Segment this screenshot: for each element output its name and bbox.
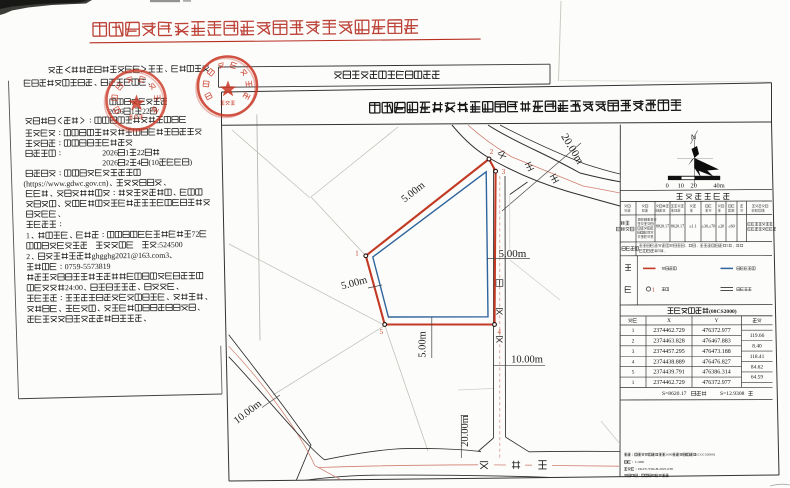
svg-text:3: 3	[632, 349, 635, 355]
svg-text:476372.977: 476372.977	[702, 380, 731, 386]
svg-text:5: 5	[726, 244, 728, 248]
svg-text:2374462.729: 2374462.729	[653, 380, 685, 386]
svg-text:≤60: ≤60	[728, 224, 734, 229]
svg-text:(CGCS2000): (CGCS2000)	[696, 453, 715, 457]
svg-text:1:1000: 1:1000	[634, 460, 644, 464]
svg-text:1: 1	[125, 148, 129, 157]
svg-text:(08CS2000): (08CS2000)	[709, 308, 737, 315]
svg-text:S=12.9308: S=12.9308	[720, 391, 745, 397]
svg-text:0759-5573819: 0759-5573819	[65, 262, 111, 271]
svg-text:X: X	[667, 318, 671, 324]
svg-text:≤20: ≤20	[718, 224, 724, 229]
svg-text:476476.827: 476476.827	[702, 359, 731, 365]
svg-text:2026: 2026	[102, 158, 118, 167]
svg-text:2: 2	[125, 158, 129, 167]
svg-text:≥1.1: ≥1.1	[689, 224, 696, 229]
svg-text:22: 22	[142, 107, 150, 116]
svg-text:8620.17: 8620.17	[671, 224, 684, 229]
svg-text:476386.314: 476386.314	[702, 370, 731, 376]
svg-text:20: 20	[691, 183, 697, 190]
svg-text:72: 72	[191, 230, 199, 239]
svg-text:5: 5	[632, 370, 635, 376]
svg-text:118.41: 118.41	[750, 354, 765, 360]
svg-text:476473.188: 476473.188	[702, 349, 731, 355]
svg-text:476372.977: 476372.977	[702, 328, 731, 334]
svg-text:5: 5	[658, 249, 660, 253]
svg-text:119.66: 119.66	[750, 333, 765, 339]
svg-text:64.59: 64.59	[751, 375, 763, 381]
svg-text:4: 4	[632, 359, 635, 365]
svg-text::524500: :524500	[157, 240, 183, 249]
svg-text:10: 10	[678, 183, 684, 190]
svg-text:2374462.729: 2374462.729	[653, 328, 685, 334]
svg-text:4: 4	[497, 329, 501, 336]
svg-text:5.00m: 5.00m	[418, 331, 429, 358]
svg-text:): )	[189, 158, 192, 167]
svg-text:(https://www.gdwc.gov.cn): (https://www.gdwc.gov.cn)	[23, 179, 109, 189]
svg-text:S=8620.17: S=8620.17	[662, 391, 687, 397]
svg-text:8.40: 8.40	[752, 343, 762, 349]
svg-text:2374438.889: 2374438.889	[653, 359, 685, 365]
svg-text:2374439.791: 2374439.791	[653, 370, 685, 376]
svg-text:2026: 2026	[102, 148, 118, 157]
svg-text:22: 22	[137, 148, 145, 157]
svg-text:2000: 2000	[665, 453, 672, 457]
svg-text:Y: Y	[715, 318, 719, 324]
svg-text:4: 4	[137, 158, 141, 167]
svg-text:24:00: 24:00	[65, 283, 83, 292]
svg-text:1: 1	[632, 328, 635, 334]
svg-text:0: 0	[666, 183, 669, 190]
svg-text:5: 5	[380, 329, 384, 336]
svg-text:10.00m: 10.00m	[511, 355, 543, 366]
svg-text:2: 2	[490, 149, 494, 156]
svg-text:1: 1	[632, 380, 635, 386]
svg-text:(10: (10	[148, 158, 159, 167]
svg-text:2: 2	[632, 338, 635, 344]
svg-text:3: 3	[502, 169, 506, 176]
svg-text:2: 2	[26, 252, 30, 261]
svg-text:ZKZY-YDGH-2025-038: ZKZY-YDGH-2025-038	[638, 467, 673, 471]
svg-text:ghgghg2021@163.com3: ghgghg2021@163.com3	[92, 251, 170, 261]
svg-text:84.62: 84.62	[751, 364, 763, 370]
svg-text:1: 1	[26, 231, 30, 240]
svg-text:1: 1	[652, 287, 655, 293]
svg-text:40m: 40m	[713, 183, 724, 190]
svg-text:2374463.828: 2374463.828	[653, 338, 685, 344]
svg-text:476467.883: 476467.883	[702, 338, 731, 344]
svg-text:8820.17: 8820.17	[656, 224, 669, 229]
svg-text:2374457.295: 2374457.295	[653, 349, 685, 355]
svg-text:1: 1	[355, 251, 358, 258]
